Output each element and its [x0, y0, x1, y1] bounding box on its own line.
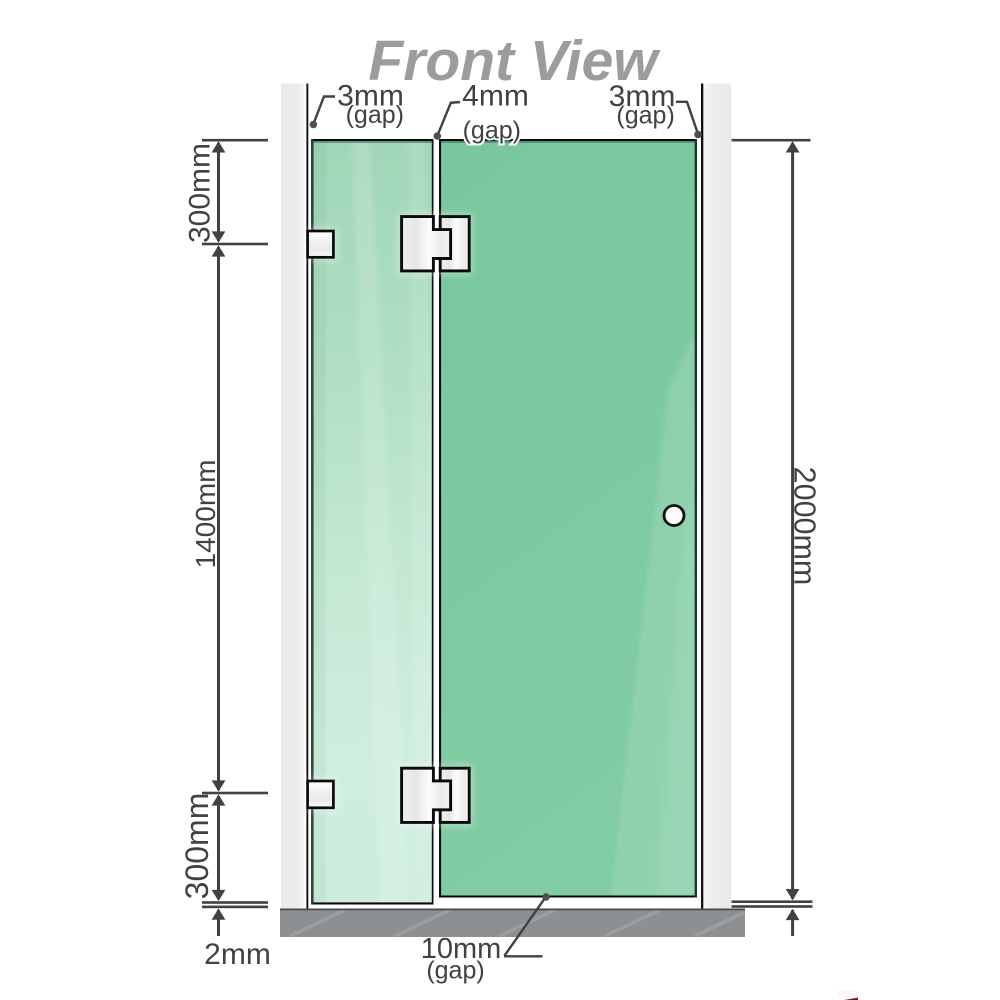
svg-text:300mm: 300mm	[184, 143, 217, 243]
svg-text:(gap): (gap)	[463, 117, 521, 145]
svg-text:1400mm: 1400mm	[190, 460, 221, 569]
svg-text:300mm: 300mm	[179, 793, 215, 900]
svg-text:(gap): (gap)	[616, 102, 674, 130]
svg-text:2mm: 2mm	[204, 938, 271, 971]
svg-text:(gap): (gap)	[426, 957, 484, 985]
svg-text:4mm: 4mm	[462, 80, 529, 113]
svg-text:2000mm: 2000mm	[788, 467, 822, 586]
svg-text:(gap): (gap)	[346, 101, 404, 129]
